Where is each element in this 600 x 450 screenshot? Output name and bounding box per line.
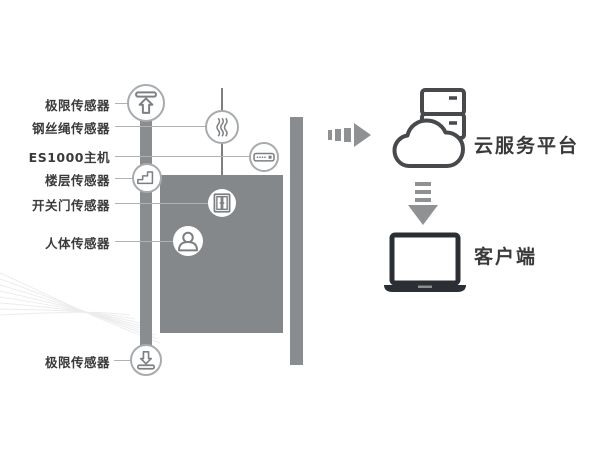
sensor-label-es1000-host: ES1000主机 bbox=[29, 147, 110, 166]
connector-line bbox=[115, 203, 209, 204]
elevator-left-guide-rail bbox=[140, 100, 152, 368]
connector-line bbox=[115, 126, 206, 127]
limit-down-sensor-icon bbox=[130, 344, 162, 376]
limit-up-sensor-icon bbox=[127, 84, 165, 122]
dashed-arrow-right-icon bbox=[328, 122, 372, 148]
wire-rope-sensor-icon bbox=[205, 110, 239, 144]
sensor-label-human-body: 人体传感器 bbox=[45, 233, 110, 252]
elevator-right-guide-rail bbox=[290, 117, 303, 365]
sensor-label-limit-top: 极限传感器 bbox=[45, 95, 110, 114]
human-body-sensor-icon bbox=[173, 226, 203, 256]
connector-line bbox=[115, 178, 133, 179]
es1000-host-icon bbox=[249, 142, 279, 172]
connector-line bbox=[115, 156, 250, 157]
dashed-arrow-down-icon bbox=[405, 181, 441, 227]
floor-sensor-icon bbox=[132, 163, 162, 193]
laptop-icon bbox=[382, 232, 468, 294]
connector-line bbox=[114, 360, 131, 361]
sensor-label-door: 开关门传感器 bbox=[32, 195, 110, 214]
sensor-label-limit-bottom: 极限传感器 bbox=[45, 352, 110, 371]
cloud-server-icon bbox=[392, 86, 474, 172]
door-open-close-sensor-icon bbox=[208, 189, 236, 217]
connector-line bbox=[115, 241, 174, 242]
elevator-monitoring-diagram: 极限传感器 钢丝绳传感器 ES1000主机 楼层传感器 开关门传感器 人体传感器… bbox=[0, 0, 600, 450]
cloud-platform-label: 云服务平台 bbox=[474, 131, 579, 158]
client-label: 客户端 bbox=[474, 242, 537, 269]
sensor-label-wire-rope: 钢丝绳传感器 bbox=[32, 118, 110, 137]
sensor-label-floor: 楼层传感器 bbox=[45, 170, 110, 189]
